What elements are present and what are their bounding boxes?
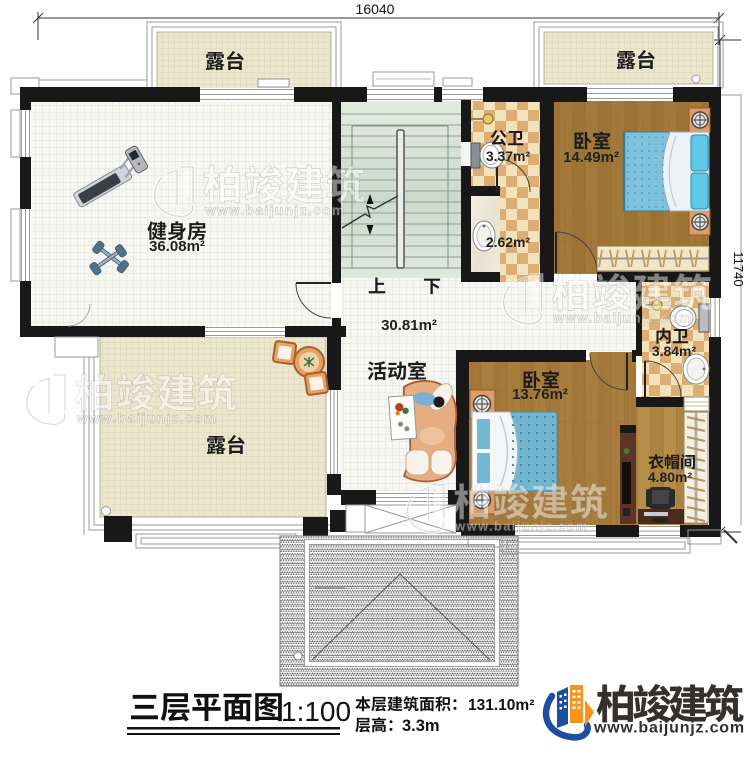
svg-text:3.3m: 3.3m [402, 717, 440, 735]
svg-text:www.baijunjz.com: www.baijunjz.com [454, 518, 588, 533]
svg-text:2.62m²: 2.62m² [486, 234, 531, 250]
svg-text:30.81m²: 30.81m² [381, 317, 437, 334]
svg-text:www.baijunjz.com: www.baijunjz.com [593, 720, 745, 737]
svg-text:16040: 16040 [356, 1, 395, 17]
svg-text:131.10m²: 131.10m² [468, 697, 534, 714]
svg-text:13.76m²: 13.76m² [512, 386, 568, 403]
svg-text:11740: 11740 [731, 251, 746, 286]
svg-text:www.baijunjz.com: www.baijunjz.com [552, 310, 692, 325]
svg-text:4.80m²: 4.80m² [648, 469, 693, 485]
svg-text:www.baijunjz.com: www.baijunjz.com [204, 203, 346, 218]
svg-text:3.37m²: 3.37m² [486, 148, 531, 164]
svg-text:1:100: 1:100 [281, 696, 351, 727]
svg-text:14.49m²: 14.49m² [563, 149, 619, 166]
svg-text:36.08m²: 36.08m² [149, 238, 205, 255]
svg-text:www.baijunjz.com: www.baijunjz.com [76, 411, 218, 426]
svg-text:3.84m²: 3.84m² [652, 343, 697, 359]
